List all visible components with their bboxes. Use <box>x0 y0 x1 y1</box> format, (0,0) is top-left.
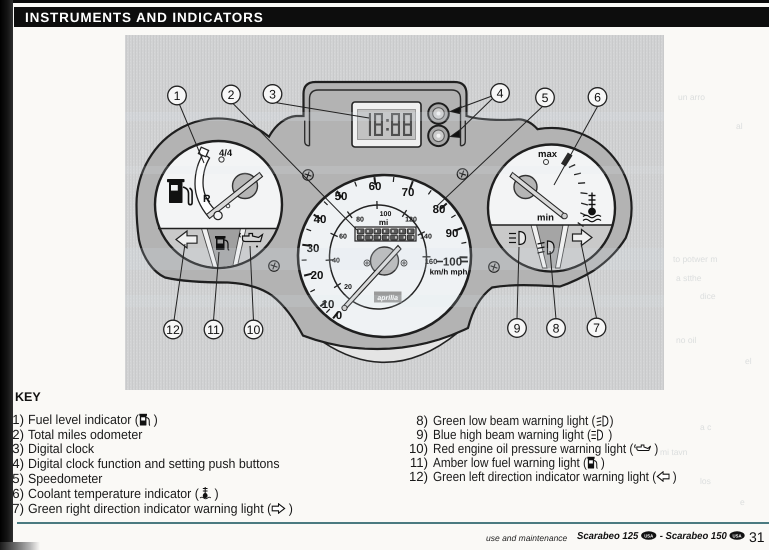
svg-text:un arro: un arro <box>678 92 705 102</box>
svg-text:140: 140 <box>420 234 432 241</box>
svg-text:0: 0 <box>336 310 342 322</box>
svg-text:USA: USA <box>644 534 654 539</box>
svg-text:min: min <box>537 213 554 224</box>
svg-text:5: 5 <box>542 91 549 105</box>
svg-text:120: 120 <box>405 217 417 224</box>
svg-text:70: 70 <box>402 187 415 199</box>
svg-text:90: 90 <box>446 228 459 240</box>
svg-text:50: 50 <box>335 191 348 203</box>
svg-text:e: e <box>740 497 745 507</box>
svg-text:20: 20 <box>344 284 352 291</box>
svg-text:60: 60 <box>339 234 347 241</box>
svg-text:1: 1 <box>174 89 181 103</box>
svg-text:R: R <box>203 193 211 205</box>
svg-text:max: max <box>538 149 558 160</box>
svg-text:20: 20 <box>311 270 324 282</box>
svg-text:12: 12 <box>166 323 180 337</box>
svg-text:to potwer m: to potwer m <box>673 254 717 264</box>
svg-text:el: el <box>745 356 752 366</box>
svg-text:8: 8 <box>553 321 560 335</box>
svg-text:al: al <box>736 121 743 131</box>
svg-text:6: 6 <box>594 90 601 104</box>
svg-text:100: 100 <box>380 211 392 218</box>
svg-text:80: 80 <box>433 204 446 216</box>
svg-text:40: 40 <box>314 214 327 226</box>
svg-text:2: 2 <box>228 88 235 102</box>
svg-text:11: 11 <box>207 323 220 337</box>
svg-text:los: los <box>700 476 711 486</box>
svg-text:USA: USA <box>733 534 743 539</box>
svg-text:dice: dice <box>700 291 716 301</box>
svg-text:a c: a c <box>700 422 712 432</box>
svg-text:4: 4 <box>497 86 504 100</box>
svg-text:no oil: no oil <box>676 335 696 345</box>
svg-text:mi tavn: mi tavn <box>660 447 688 457</box>
svg-text:60: 60 <box>369 181 382 193</box>
svg-text:3: 3 <box>269 87 276 101</box>
svg-text:a stthe: a stthe <box>676 273 702 283</box>
svg-text:7: 7 <box>593 321 600 335</box>
svg-text:10: 10 <box>247 323 261 337</box>
svg-text:80: 80 <box>356 217 364 224</box>
svg-text:9: 9 <box>514 321 521 335</box>
svg-text:mi: mi <box>379 218 388 227</box>
